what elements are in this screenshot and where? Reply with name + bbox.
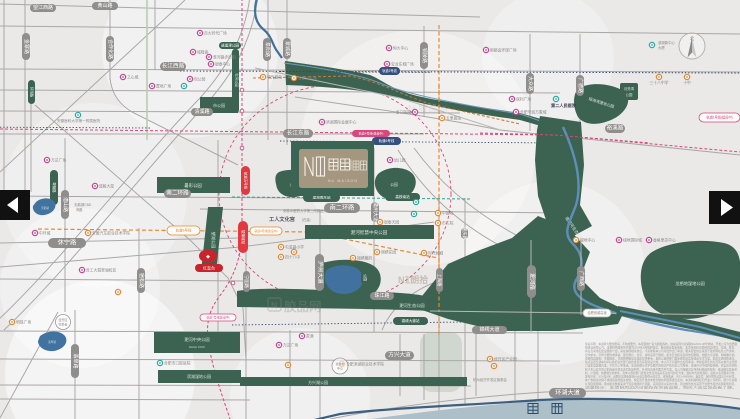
svg-text:公园: 公园 <box>390 182 398 187</box>
svg-text:方兴大道: 方兴大道 <box>388 351 411 359</box>
svg-text:五里庙站: 五里庙站 <box>446 115 461 120</box>
svg-text:南二环路: 南二环路 <box>166 189 189 197</box>
svg-text:万达广场: 万达广场 <box>51 157 66 162</box>
svg-text:中医院: 中医院 <box>442 210 454 215</box>
svg-text:省政务: 省政务 <box>335 361 344 366</box>
svg-text:合作化路: 合作化路 <box>107 39 114 59</box>
svg-text:经开区产业园: 经开区产业园 <box>494 356 517 361</box>
svg-text:锦绣大道站: 锦绣大道站 <box>402 318 420 323</box>
svg-text:天鹅湖: 天鹅湖 <box>41 206 49 210</box>
svg-text:上海路: 上海路 <box>436 274 443 288</box>
svg-text:望湖公园: 望湖公园 <box>210 232 217 249</box>
svg-text:公园: 公园 <box>626 92 633 97</box>
svg-text:包公园: 包公园 <box>194 76 206 81</box>
svg-text:珠江路: 珠江路 <box>374 292 389 299</box>
svg-text:广西路: 广西路 <box>578 271 585 286</box>
svg-text:中心: 中心 <box>337 366 343 371</box>
svg-text:环湖大道: 环湖大道 <box>555 389 580 397</box>
svg-text:轨道2号线: 轨道2号线 <box>382 68 397 73</box>
svg-text:合工大翡翠湖校区: 合工大翡翠湖校区 <box>86 267 117 272</box>
svg-text:杭州经济开发区管委会: 杭州经济开发区管委会 <box>473 377 508 382</box>
svg-text:蓝鲸大厦: 蓝鲸大厦 <box>99 183 114 188</box>
svg-text:市公园: 市公园 <box>213 102 225 108</box>
svg-text:银泰天园: 银泰天园 <box>384 219 399 224</box>
svg-text:城隍庙: 城隍庙 <box>197 49 209 54</box>
svg-text:银泰中心: 银泰中心 <box>215 61 230 66</box>
svg-text:包河公园: 包河公园 <box>235 73 240 87</box>
svg-text:重庆路: 重庆路 <box>461 227 468 241</box>
svg-text:淝河路: 淝河路 <box>529 273 537 290</box>
svg-text:绿地中心: 绿地中心 <box>580 237 595 242</box>
svg-text:长江西路: 长江西路 <box>162 62 185 70</box>
svg-text:N𝟙朗拾: N𝟙朗拾 <box>398 274 428 285</box>
svg-text:翡翠路: 翡翠路 <box>72 353 79 368</box>
svg-text:N: N <box>271 301 278 311</box>
svg-text:安徽医科大学第一附属医院: 安徽医科大学第一附属医院 <box>57 118 101 123</box>
svg-text:管委会: 管委会 <box>58 322 67 327</box>
svg-text:蒙城路: 蒙城路 <box>284 41 291 56</box>
svg-text:恒大中心: 恒大中心 <box>393 45 408 50</box>
svg-text:明光路站: 明光路站 <box>267 74 282 79</box>
svg-text:百大时代广场: 百大时代广场 <box>204 30 227 35</box>
svg-text:锦绣大道: 锦绣大道 <box>479 326 499 333</box>
svg-text:商圈: 商圈 <box>76 207 82 212</box>
svg-text:宁国路: 宁国路 <box>243 275 250 289</box>
svg-text:轨道6号线: 轨道6号线 <box>379 138 395 143</box>
svg-text:大厦: 大厦 <box>658 45 665 50</box>
svg-text:合肥绕城高速: 合肥绕城高速 <box>587 310 607 315</box>
svg-text:公园: 公园 <box>363 274 368 281</box>
svg-text:合肥滨湖职业技术学院: 合肥滨湖职业技术学院 <box>346 361 384 366</box>
svg-text:淮河路步行街: 淮河路步行街 <box>213 54 236 59</box>
svg-text:轨道9号线: 轨道9号线 <box>176 228 192 233</box>
svg-text:高铁南站: 高铁南站 <box>395 194 410 199</box>
svg-text:望湖城站: 望湖城站 <box>241 230 246 245</box>
svg-text:天鹅湖CBD: 天鹅湖CBD <box>74 202 92 207</box>
svg-text:十中: 十中 <box>683 80 691 85</box>
svg-text:广德路: 广德路 <box>577 78 584 93</box>
svg-text:宿松路: 宿松路 <box>138 273 145 288</box>
svg-text:明珠广场: 明珠广场 <box>16 319 31 324</box>
svg-text:工人文化宫: 工人文化宫 <box>269 215 295 223</box>
svg-text:中环城: 中环城 <box>39 230 51 235</box>
svg-text:红玺台: 红玺台 <box>203 265 215 271</box>
svg-text:黄山路: 黄山路 <box>97 2 112 9</box>
svg-text:轨道9号线(建设中): 轨道9号线(建设中) <box>255 229 278 233</box>
svg-text:暑彩公园: 暑彩公园 <box>184 182 202 189</box>
svg-text:(在建): (在建) <box>302 217 311 222</box>
svg-text:经开区: 经开区 <box>58 317 67 322</box>
svg-text:阜阳路: 阜阳路 <box>264 42 271 57</box>
svg-text:❖: ❖ <box>206 254 211 261</box>
svg-text:宝业东城广场: 宝业东城广场 <box>391 61 414 66</box>
svg-text:休宁路: 休宁路 <box>58 239 77 247</box>
svg-text:清溪路: 清溪路 <box>194 108 209 115</box>
svg-text:轨道五号线: 轨道五号线 <box>244 172 249 190</box>
svg-text:FEIHE PARK: FEIHE PARK <box>189 345 206 349</box>
svg-text:香格里拉中心: 香格里拉中心 <box>653 237 676 242</box>
svg-text:轨道1号线(建设中): 轨道1号线(建设中) <box>706 115 732 120</box>
svg-text:置地广场: 置地广场 <box>156 83 171 88</box>
svg-text:时代倾城: 时代倾城 <box>428 250 443 255</box>
svg-text:南二环路: 南二环路 <box>330 204 356 212</box>
svg-text:保利广场: 保利广场 <box>516 96 531 101</box>
svg-text:滨湖新中心: 滨湖新中心 <box>658 40 676 45</box>
svg-text:潜山路: 潜山路 <box>62 197 69 212</box>
svg-text:胶品网: 胶品网 <box>284 299 322 314</box>
svg-text:大众路: 大众路 <box>527 76 534 91</box>
svg-text:徽州大道: 徽州大道 <box>372 202 379 222</box>
svg-text:翡翠湖: 翡翠湖 <box>48 340 56 344</box>
svg-text:淝河生态公园: 淝河生态公园 <box>399 302 424 309</box>
svg-text:N 胶品网: N 胶品网 <box>408 102 448 115</box>
svg-text:逍遥津公园: 逍遥津公园 <box>221 43 239 48</box>
svg-text:温馨提示：本项目周边仍可能存在市政设施，购房人应实地查看了解: 温馨提示：本项目周边仍可能存在市政设施，购房人应实地查看了解。 <box>585 384 737 389</box>
svg-text:第二人民医院: 第二人民医院 <box>551 102 577 109</box>
svg-text:万达广场: 万达广场 <box>283 342 298 347</box>
svg-text:锦绣徽府: 锦绣徽府 <box>357 255 372 260</box>
svg-text:望江西路: 望江西路 <box>33 4 53 11</box>
svg-text:贵澳: 贵澳 <box>306 333 314 338</box>
svg-text:方兴湖公园: 方兴湖公园 <box>308 379 328 385</box>
svg-text:安徽汽车职业技术学院: 安徽汽车职业技术学院 <box>92 230 130 235</box>
svg-text:之心城: 之心城 <box>127 74 139 79</box>
svg-text:NU MAISON: NU MAISON <box>328 179 358 183</box>
svg-text:龙栖地湿地公园: 龙栖地湿地公园 <box>675 280 704 287</box>
svg-text:三十八中学: 三十八中学 <box>650 80 669 85</box>
svg-text:轨道4号线(建设中): 轨道4号线(建设中) <box>359 131 384 136</box>
svg-text:环湾路: 环湾路 <box>30 87 35 98</box>
svg-text:合肥火车站: 合肥火车站 <box>298 75 317 80</box>
svg-text:市三院: 市三院 <box>442 220 454 225</box>
svg-text:新都会环球广场: 新都会环球广场 <box>490 47 517 52</box>
svg-text:翠微路: 翠微路 <box>52 182 57 193</box>
svg-text:幼儿园: 幼儿园 <box>394 157 406 162</box>
svg-text:四十八中: 四十八中 <box>285 254 300 259</box>
svg-text:淝河智慧中央公园: 淝河智慧中央公园 <box>351 229 388 236</box>
svg-text:合肥华润万象城: 合肥华润万象城 <box>520 109 547 114</box>
svg-text:裕溪路: 裕溪路 <box>607 124 624 132</box>
svg-text:金寨路: 金寨路 <box>23 39 30 54</box>
svg-text:屯溪路小学: 屯溪路小学 <box>285 244 304 249</box>
svg-text:月亮湾: 月亮湾 <box>624 86 635 91</box>
svg-text:滨湖湿地公园: 滨湖湿地公园 <box>187 373 211 379</box>
svg-text:铜陵路: 铜陵路 <box>421 48 428 63</box>
svg-text:绿地国际城: 绿地国际城 <box>623 237 642 242</box>
svg-text:淝河中央公园: 淝河中央公园 <box>184 336 209 343</box>
svg-text:合肥市口腔医院: 合肥市口腔医院 <box>164 360 191 365</box>
svg-text:滨湖国际会展中心: 滨湖国际会展中心 <box>326 119 357 124</box>
svg-text:轨道7号线(建设中): 轨道7号线(建设中) <box>207 316 230 320</box>
svg-text:长江东路: 长江东路 <box>287 129 310 137</box>
svg-text:锦绣花园: 锦绣花园 <box>381 249 396 254</box>
svg-text:庐州大道: 庐州大道 <box>317 261 325 284</box>
